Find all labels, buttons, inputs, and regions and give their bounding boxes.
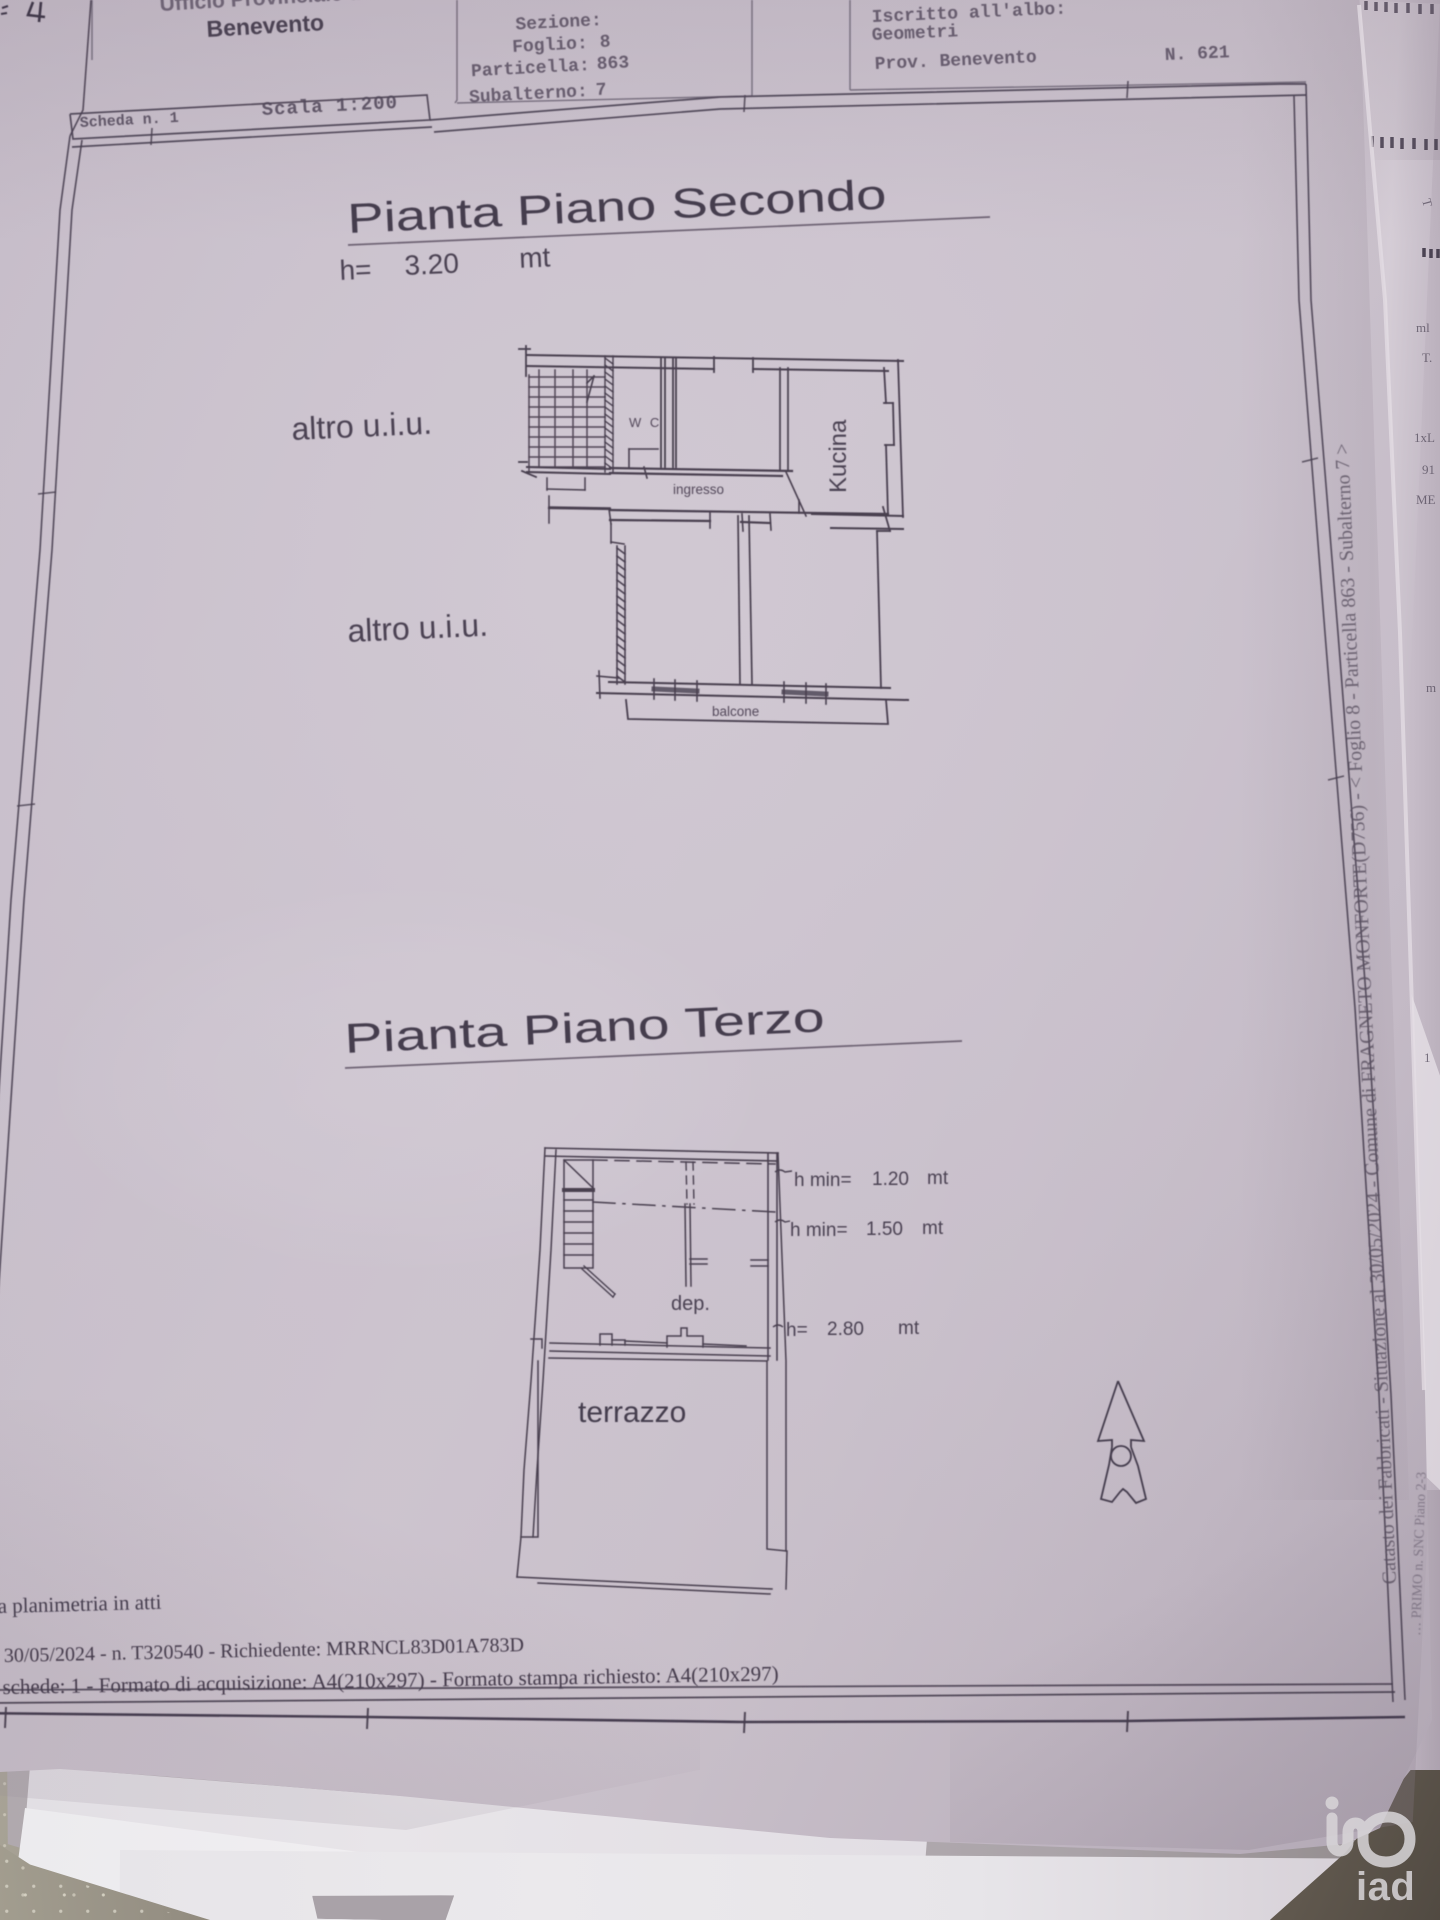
svg-text:h min=1.20mt: h min=1.20mt: [794, 1168, 949, 1191]
svg-text:Geometri: Geometri: [871, 22, 958, 46]
svg-text:Foglio:: Foglio:: [512, 34, 589, 58]
svg-text:N. 621: N. 621: [1164, 43, 1230, 66]
svg-text:7: 7: [595, 80, 607, 101]
svg-text:Pianta Piano Terzo: Pianta Piano Terzo: [343, 994, 825, 1062]
svg-text:Scala 1:200: Scala 1:200: [261, 92, 398, 121]
svg-text:W C: W C: [629, 415, 662, 430]
svg-text:terrazzo: terrazzo: [578, 1396, 686, 1429]
svg-text:Subalterno:: Subalterno:: [469, 82, 589, 108]
svg-text:ingresso: ingresso: [673, 482, 724, 497]
svg-text:h=2.80mt: h=2.80mt: [786, 1318, 920, 1341]
svg-text:Particella:: Particella:: [471, 56, 591, 82]
svg-text:Sezione:: Sezione:: [515, 11, 602, 35]
svg-text:altro u.i.u.: altro u.i.u.: [347, 607, 489, 649]
svg-text:h=3.20mt: h=3.20mt: [339, 241, 552, 286]
svg-text:ıa planimetria in atti: ıa planimetria in atti: [0, 1590, 162, 1618]
svg-text:… PRIMO n. SNC Piano 2-3: … PRIMO n. SNC Piano 2-3: [1409, 1472, 1430, 1637]
svg-text:iad: iad: [1356, 1865, 1415, 1906]
svg-text:30/05/2024 - n. T320540 - Rich: 30/05/2024 - n. T320540 - Richiedente: M…: [4, 1634, 525, 1667]
svg-text:Benevento: Benevento: [206, 9, 325, 42]
svg-text:Catasto dei Fabbricati - Situa: Catasto dei Fabbricati - Situazione al 3…: [1331, 443, 1401, 1585]
svg-text:Kucina: Kucina: [825, 419, 852, 493]
svg-text:dep.: dep.: [671, 1293, 710, 1315]
svg-text:h min=1.50mt: h min=1.50mt: [790, 1218, 944, 1241]
svg-text:Pianta Piano Secondo: Pianta Piano Secondo: [346, 172, 887, 243]
svg-text:863: 863: [596, 53, 629, 75]
svg-text:altro u.i.u.: altro u.i.u.: [291, 405, 433, 447]
svg-text:8: 8: [599, 32, 611, 53]
svg-text:e schede: 1 - Formato di acqui: e schede: 1 - Formato di acquisizione: A…: [0, 1661, 779, 1699]
svg-text:Prov. Benevento: Prov. Benevento: [874, 48, 1037, 75]
svg-text:balcone: balcone: [712, 704, 759, 719]
